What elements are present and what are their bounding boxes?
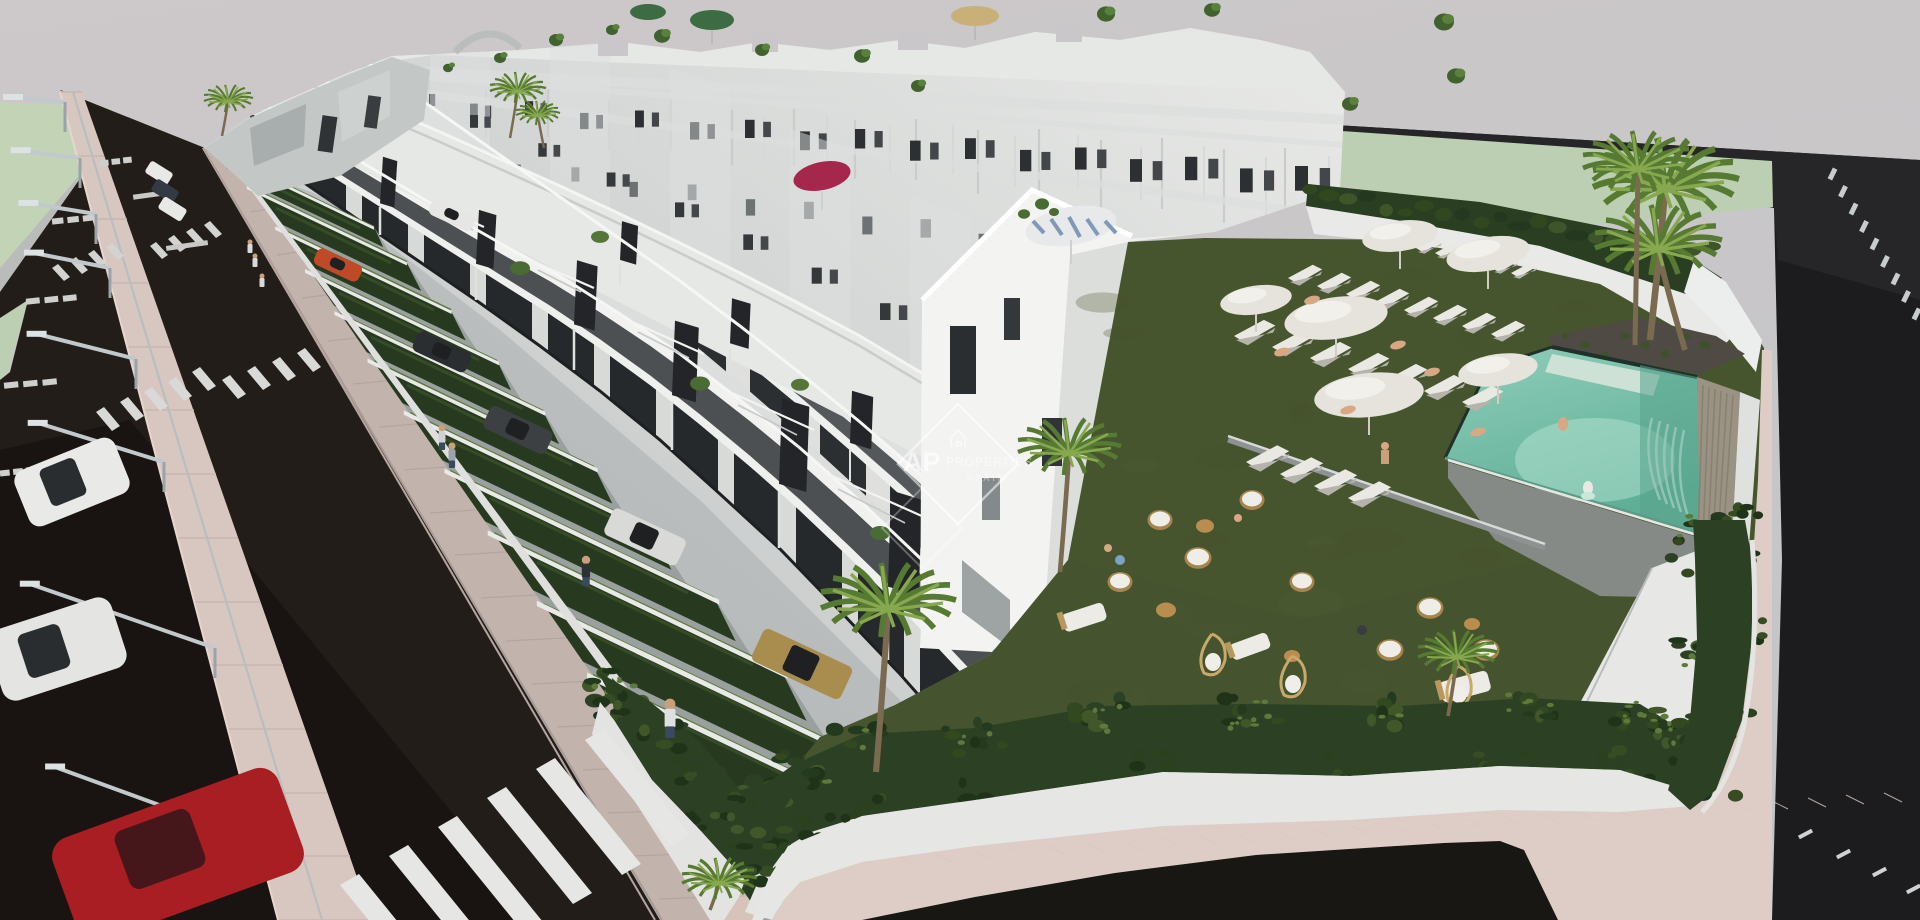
svg-text:AP: AP <box>903 447 941 477</box>
svg-text:SPAIN: SPAIN <box>966 473 1007 483</box>
svg-text:PROPERTIES: PROPERTIES <box>946 455 1033 469</box>
